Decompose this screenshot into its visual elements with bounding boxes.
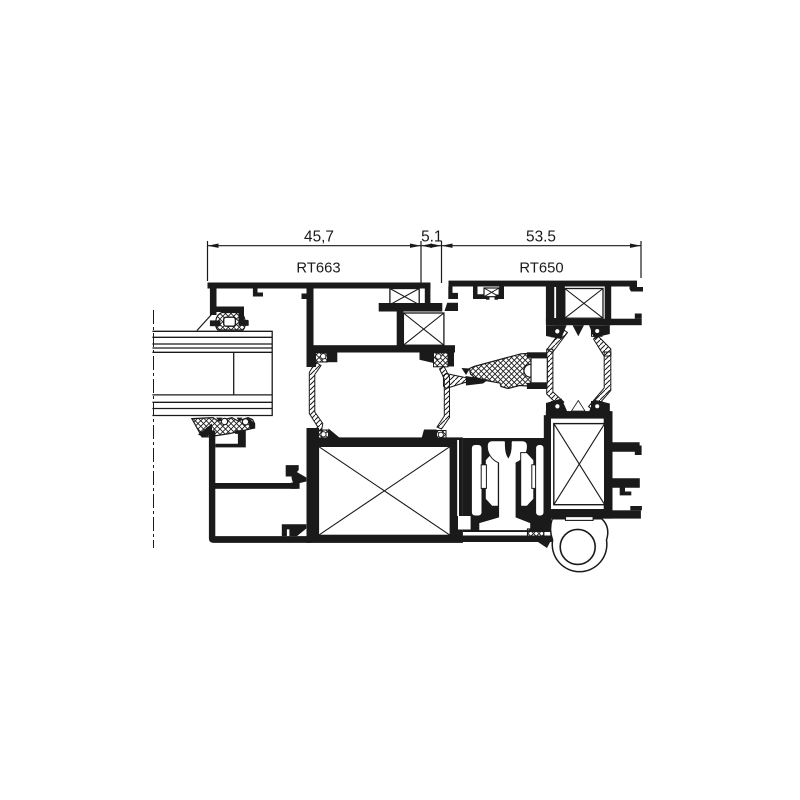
svg-text:RT650: RT650 <box>519 261 563 277</box>
svg-text:5.1: 5.1 <box>421 229 442 246</box>
svg-text:45,7: 45,7 <box>304 229 334 246</box>
svg-text:53.5: 53.5 <box>526 229 556 246</box>
svg-text:RT663: RT663 <box>296 261 340 277</box>
